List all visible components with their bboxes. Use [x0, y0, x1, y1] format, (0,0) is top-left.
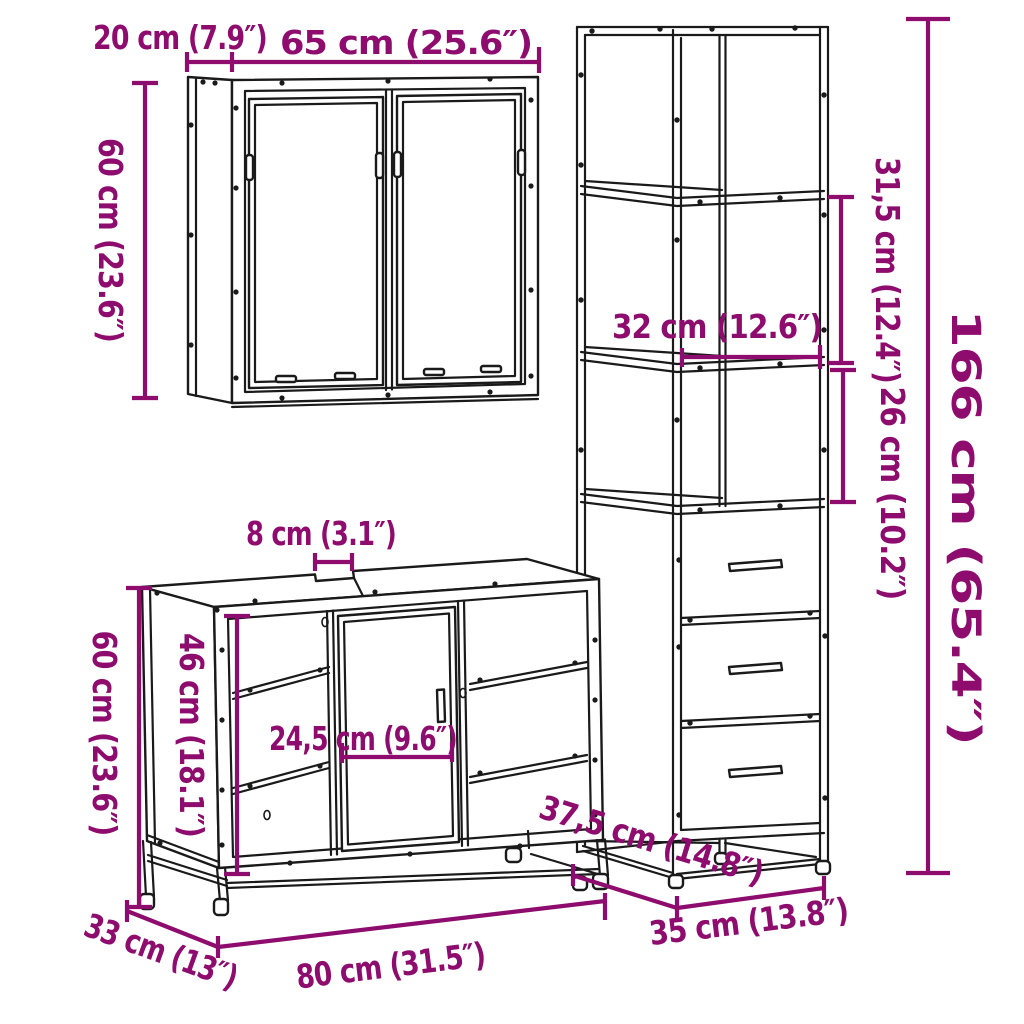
diagram-canvas: 20 cm (7.9″) 65 cm (25.6″) 60 cm (23.6″)… — [0, 0, 1024, 1024]
mirror-door-right — [397, 94, 521, 385]
dim-sink-top-gap-label: 8 cm (3.1″) — [246, 514, 396, 553]
tall-cabinet-drawing — [573, 25, 830, 890]
dim-mirror-depth-label: 20 cm (7.9″) — [93, 18, 267, 57]
dim-tall-lower-section-label: 26 cm (10.2″) — [873, 387, 912, 600]
door-handle — [437, 690, 445, 723]
dim-tall-shelf-width-label: 32 cm (12.6″) — [612, 307, 822, 346]
dim-mirror-height-label: 60 cm (23.6″) — [91, 138, 130, 342]
screw-dots — [578, 25, 827, 817]
dim-sink-interior-height-label: 46 cm (18.1″) — [172, 633, 211, 837]
furniture-dimension-diagram: 20 cm (7.9″) 65 cm (25.6″) 60 cm (23.6″)… — [0, 0, 1024, 1024]
dim-tall-upper-section-label: 31,5 cm (12.4″) — [868, 157, 907, 383]
dim-sink-width-label: 80 cm (31.5″) — [294, 935, 487, 997]
mirror-cabinet-drawing — [188, 76, 538, 407]
dim-mirror-width-label: 65 cm (25.6″) — [280, 23, 532, 62]
dim-tall-height-label: 166 cm (65.4″) — [942, 310, 988, 745]
dim-sink-depth-label: 33 cm (13″) — [79, 906, 243, 997]
mirror-door-left — [249, 97, 383, 388]
dim-sink-door-width-label: 24,5 cm (9.6″) — [269, 719, 457, 758]
drawer-handle — [729, 560, 782, 777]
dim-sink-height-label: 60 cm (23.6″) — [85, 631, 124, 836]
